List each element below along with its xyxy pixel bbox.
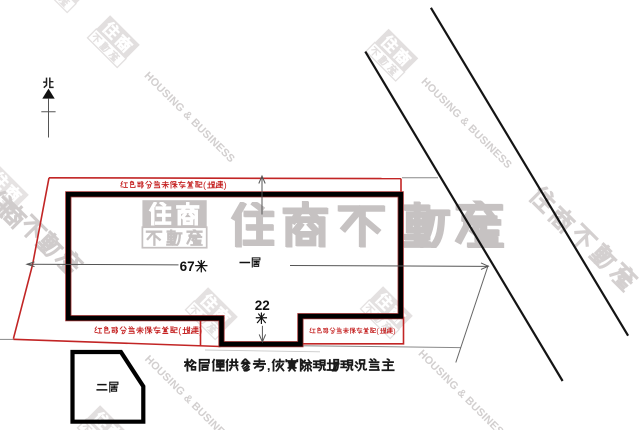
svg-text:22: 22 [255, 298, 270, 313]
svg-text:67: 67 [180, 259, 195, 274]
svg-text:,: , [267, 358, 271, 373]
